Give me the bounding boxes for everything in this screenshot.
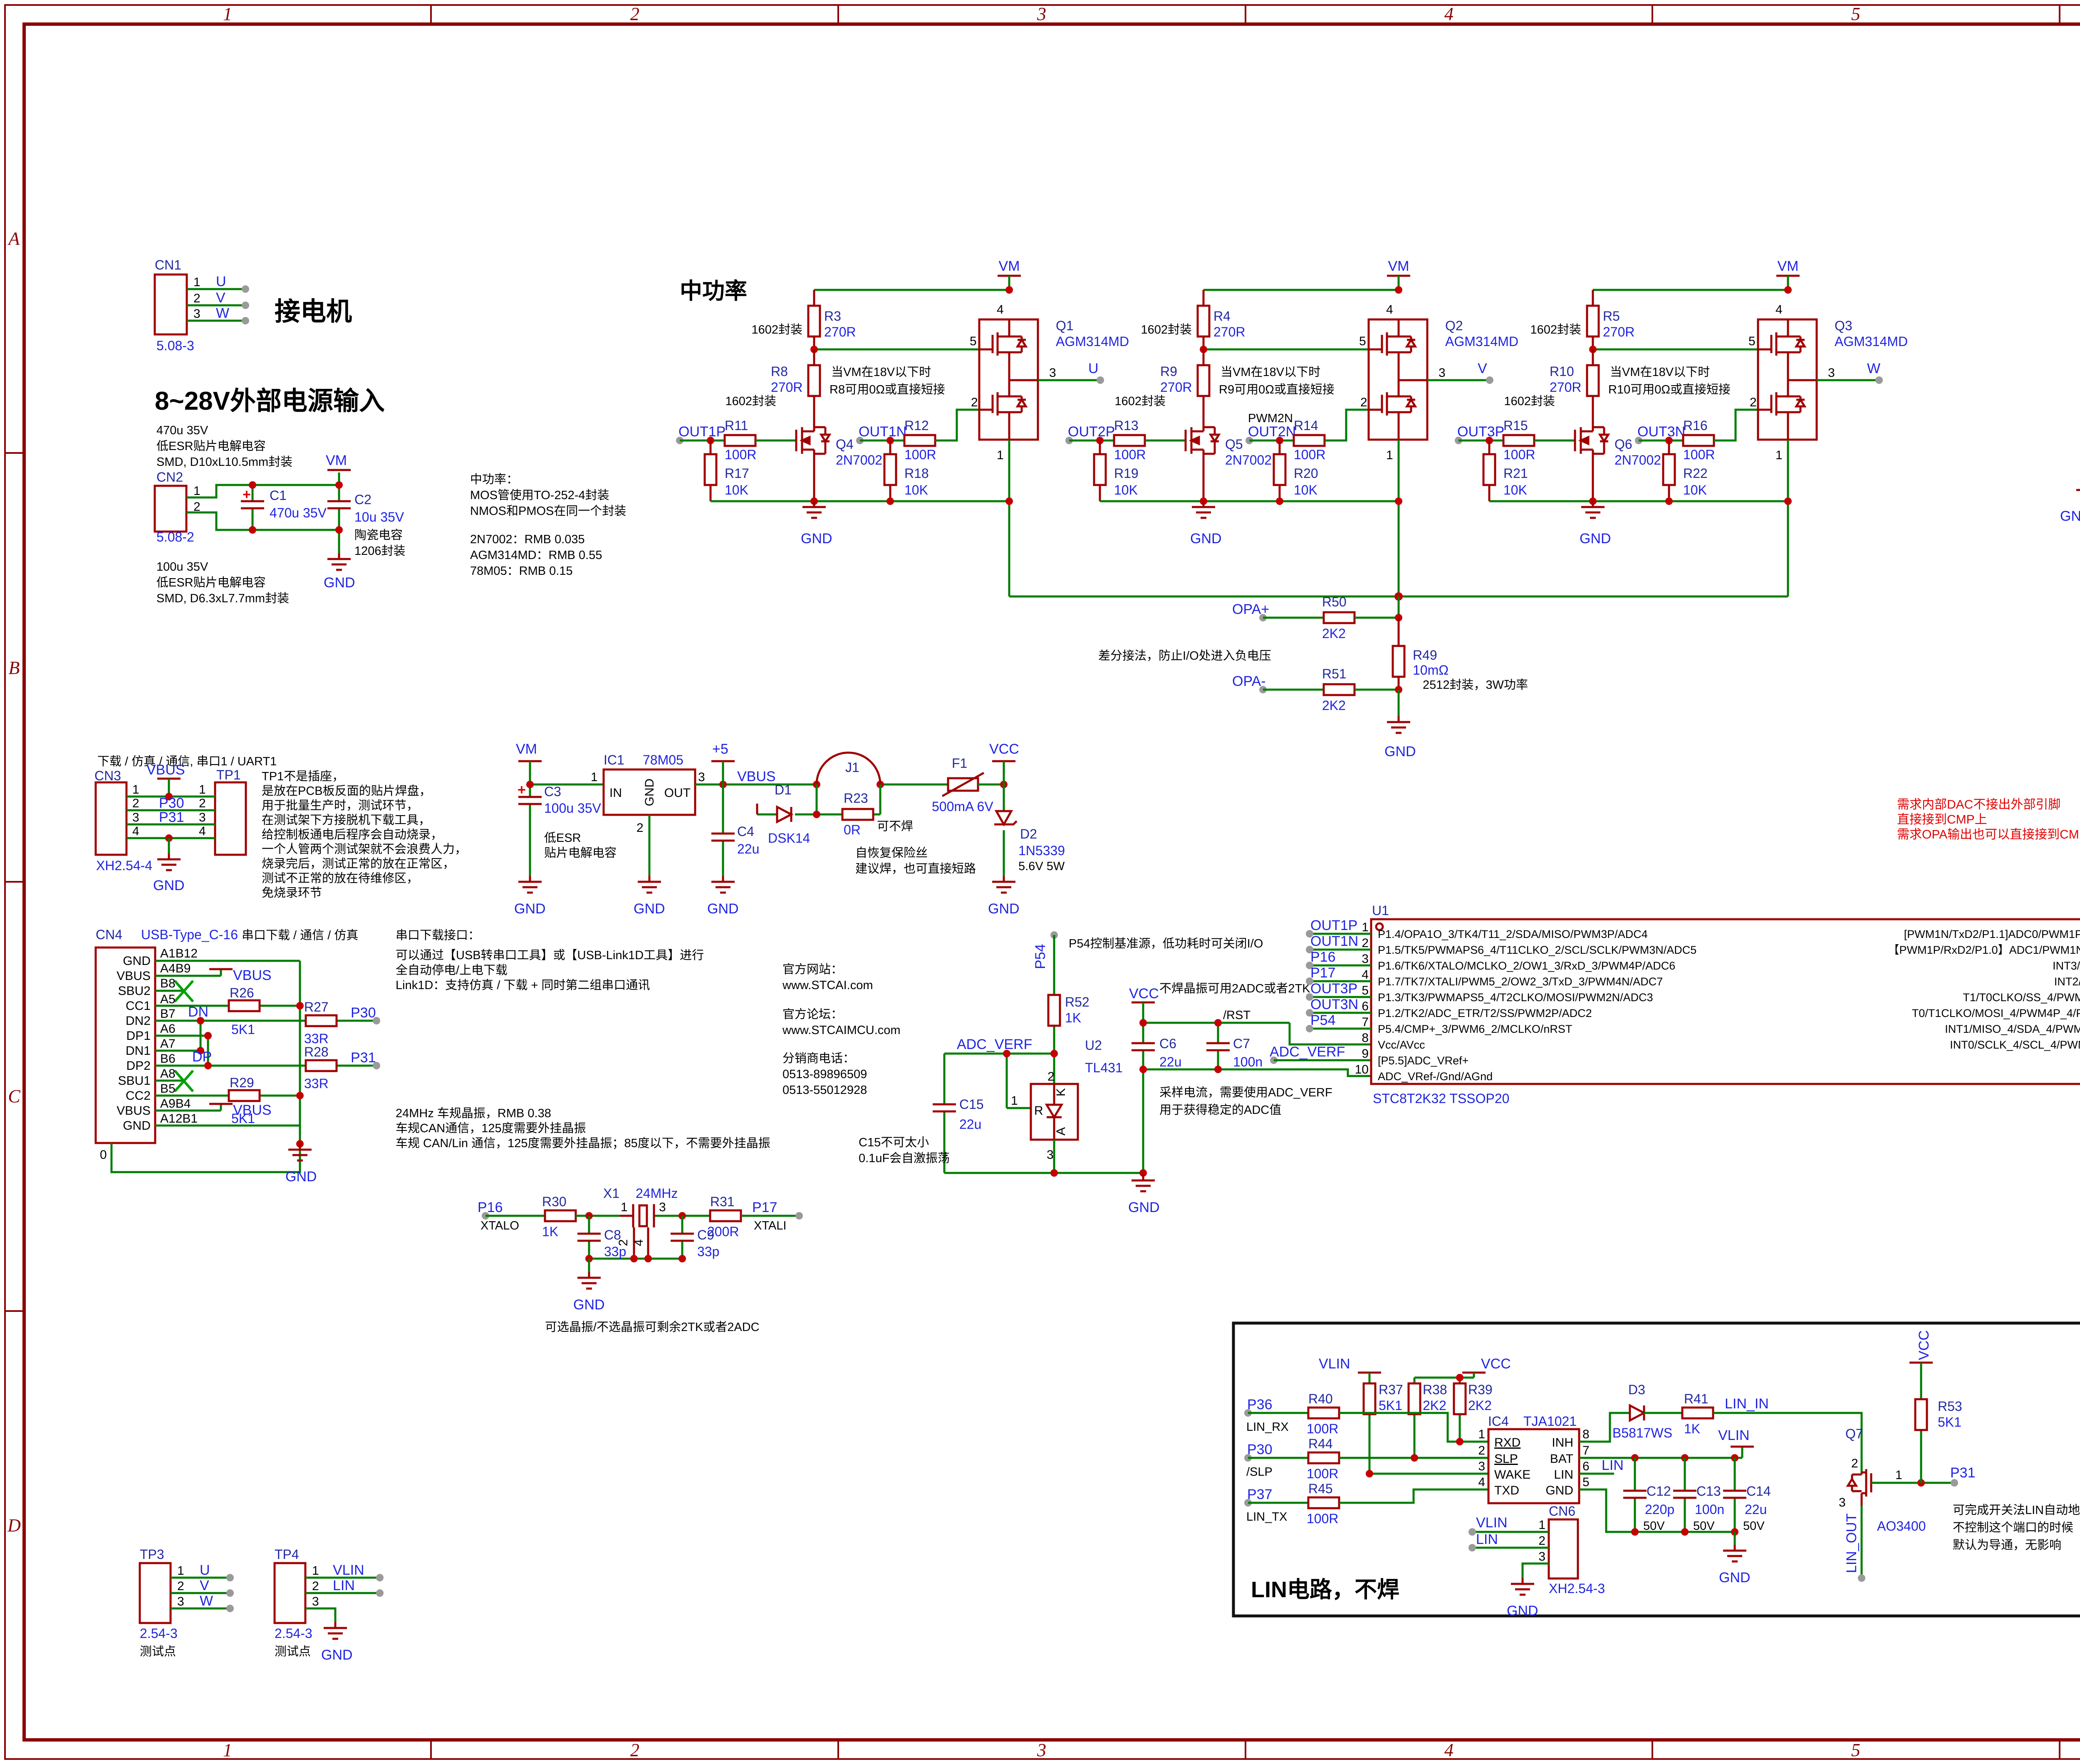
ic4-wake: WAKE <box>1494 1468 1530 1482</box>
usb-shell: 0 <box>100 1148 107 1162</box>
r38-val: 2K2 <box>1423 1398 1446 1413</box>
r49-val: 10mΩ <box>1413 663 1449 678</box>
note: Link1D：支持仿真 / 下载 + 同时第二组串口通讯 <box>396 978 650 992</box>
tp3-ref: TP3 <box>140 1547 164 1562</box>
net-vcc: VCC <box>1481 1356 1511 1372</box>
usb-des: A1B12 <box>160 947 198 960</box>
net: OUT3N <box>1310 997 1358 1012</box>
net-vlin: VLIN <box>1319 1356 1350 1372</box>
note: MOS管使用TO-252-4封装 <box>470 488 609 502</box>
qs-ref: Q5 <box>1225 437 1243 452</box>
x1-ref: X1 <box>603 1186 619 1201</box>
note: 贴片电解电容 <box>544 846 617 860</box>
note: 可完成开关法LIN自动地址识别 <box>1953 1503 2080 1517</box>
qs-ref: Q4 <box>836 437 854 452</box>
rp-ref: R11 <box>725 418 748 433</box>
note: 0.1uF会自激振荡 <box>859 1151 950 1165</box>
c12-volt: 50V <box>1643 1519 1665 1533</box>
rmid-val: 270R <box>1550 380 1582 395</box>
net-p30: P30 <box>351 1005 376 1021</box>
net-lin-out: LIN_OUT <box>1844 1513 1860 1573</box>
q7-pin2: 2 <box>1851 1457 1858 1470</box>
note: 用于获得稳定的ADC值 <box>1159 1103 1281 1117</box>
r45-val: 100R <box>1307 1511 1339 1526</box>
net-adcverf: ADC_VERF <box>957 1037 1032 1052</box>
rn-val: 100R <box>1683 447 1715 462</box>
note: 不焊晶振可用2ADC或者2TK <box>1159 982 1310 995</box>
note: 自恢复保险丝 <box>855 846 928 860</box>
q-val: AGM314MD <box>1445 334 1518 349</box>
r28-val: 33R <box>304 1076 329 1091</box>
r51-ref: R51 <box>1322 666 1347 681</box>
pkg: 1602封装 <box>1114 394 1166 408</box>
net-lin: LIN <box>1476 1531 1498 1547</box>
pin: 3 <box>199 811 206 824</box>
mcu-u1[interactable]: U1 OUT1P OUT1N P16 P17 OUT3P OUT3N P54 1… <box>1306 903 2080 1106</box>
lin-title: LIN电路，不焊 <box>1251 1577 1399 1602</box>
pin: 3 <box>177 1595 184 1608</box>
pin: 5 <box>1362 984 1369 997</box>
note: SMD, D10xL10.5mm封装 <box>156 455 292 469</box>
usb-name: GND <box>123 1119 151 1133</box>
net-vm: VM <box>1778 258 1799 274</box>
d2-ref: D2 <box>1020 826 1037 841</box>
rmid-val: 270R <box>1160 380 1192 395</box>
net-vlin: VLIN <box>1476 1515 1508 1531</box>
tp1-ref: TP1 <box>216 767 241 782</box>
u2-a: A <box>1054 1127 1068 1136</box>
q7-ref: Q7 <box>1845 1426 1863 1441</box>
zone-col: 4 <box>1444 1740 1454 1760</box>
phone: 0513-55012928 <box>782 1084 867 1097</box>
inp-net: OUT1P <box>678 424 726 440</box>
r41-val: 1K <box>1684 1421 1700 1436</box>
qs-val: 2N7002 <box>1225 453 1272 468</box>
net-u: U <box>216 274 226 289</box>
usb-des: B5 <box>160 1082 176 1096</box>
d1-val: DSK14 <box>768 831 810 846</box>
fn: INT0/SCLK_4/SCL_4/PWMETI/PWMETI2/TK14/P3… <box>1950 1039 2080 1051</box>
forum-url: www.STCAIMCU.com <box>782 1024 901 1037</box>
note: 采样电流，需要使用ADC_VERF <box>1159 1086 1332 1099</box>
ic4-ref: IC4 <box>1488 1414 1509 1429</box>
out-net: U <box>1088 361 1099 376</box>
note: 470u 35V <box>156 424 208 437</box>
note: 不控制这个端口的时候 <box>1953 1521 2073 1534</box>
q-val: AGM314MD <box>1056 334 1129 349</box>
net-gnd: GND <box>321 1647 353 1663</box>
lin-circuit[interactable]: LIN电路，不焊 VLIN R37 5K1 VCC R38 2K2 R39 2K… <box>1233 1323 2080 1619</box>
out-net: V <box>1478 361 1487 376</box>
uart-connector[interactable]: 下载 / 仿真 / 通信, 串口1 / UART1 CN3 TP1 1 2 3 … <box>94 755 467 900</box>
u2-val: TL431 <box>1085 1060 1123 1075</box>
c6-ref: C6 <box>1159 1036 1176 1051</box>
cn3-footprint: XH2.54-4 <box>96 858 152 873</box>
fn: ADC_VRef-/Gnd/AGnd <box>1378 1070 1493 1083</box>
current-sense[interactable]: OPA+ R50 2K2 R49 10mΩ OPA- R51 2K2 GND 差… <box>1009 592 1788 760</box>
q-ref: Q2 <box>1445 318 1463 333</box>
net-vm: VM <box>999 258 1020 274</box>
midpower-title: 中功率 <box>680 279 747 304</box>
net-lin-in: LIN_IN <box>1725 1396 1769 1412</box>
usb-des: A8 <box>160 1067 176 1081</box>
pin3: 3 <box>1439 366 1446 380</box>
net-gnd: GND <box>801 531 832 547</box>
rpd-val: 10K <box>1114 482 1138 497</box>
ic1-gnd: GND <box>643 779 656 807</box>
r39-ref: R39 <box>1468 1382 1493 1397</box>
rmid-ref: R9 <box>1160 364 1177 379</box>
phone: 0513-89896509 <box>782 1068 867 1081</box>
usb-name: DP2 <box>126 1059 151 1073</box>
net-gnd: GND <box>1507 1603 1538 1619</box>
pin: 4 <box>1478 1475 1485 1489</box>
cn4-desc: 串口下载 / 通信 / 仿真 <box>242 928 358 942</box>
c14-ref: C14 <box>1746 1484 1771 1499</box>
note: 车规 CAN/Lin 通信，125度需要外挂晶振；85度以下，不需要外挂晶振 <box>396 1136 770 1150</box>
cn6-footprint: XH2.54-3 <box>1549 1581 1605 1596</box>
note: 可不焊 <box>877 819 913 833</box>
pin: 8 <box>1362 1031 1369 1045</box>
r26-val: 5K1 <box>231 1022 255 1037</box>
net-gnd: GND <box>1719 1570 1751 1586</box>
pin: 4 <box>1362 968 1369 982</box>
phase-v[interactable]: VM R4 270R 1602封装 5 R9 270R 1602封装 当VM在1… <box>1065 258 1518 596</box>
j1-ref: J1 <box>845 760 859 775</box>
out-net: W <box>1867 361 1880 376</box>
note: NMOS和PMOS在同一个封装 <box>470 504 626 518</box>
r31-ref: R31 <box>710 1194 735 1209</box>
net-gnd: GND <box>634 901 665 917</box>
net-v: V <box>216 290 225 306</box>
r39-val: 2K2 <box>1468 1398 1492 1413</box>
ic1-out: OUT <box>664 786 691 800</box>
note: TP1不是插座， <box>262 769 344 783</box>
r44-val: 100R <box>1307 1466 1339 1481</box>
note: 差分接法，防止I/O处进入负电压 <box>1098 649 1271 663</box>
pkg: 1602封装 <box>1141 323 1192 336</box>
ic4-slp: SLP <box>1494 1452 1518 1466</box>
q-ref: Q3 <box>1835 318 1852 333</box>
fn: P1.6/TK6/XTALO/MCLKO_2/OW1_3/RxD_3/PWM4P… <box>1378 960 1675 972</box>
cn2-footprint: 5.08-2 <box>156 529 194 544</box>
pin: 4 <box>132 824 139 838</box>
r31-val: 200R <box>707 1224 739 1239</box>
pin2: 2 <box>1750 396 1757 409</box>
r38-ref: R38 <box>1423 1382 1447 1397</box>
c4-val: 22u <box>737 841 759 856</box>
zone-col: 1 <box>223 4 232 24</box>
note-red: 直接接到CMP上 <box>1897 813 1987 826</box>
rn-ref: R14 <box>1294 418 1318 433</box>
net-p30: P30 <box>1247 1442 1273 1457</box>
note: R8可用0Ω或直接短接 <box>830 383 945 396</box>
note: 低ESR贴片电解电容 <box>156 576 266 589</box>
regulator-78m05[interactable]: VM + C3 100u 35V 低ESR 贴片电解电容 GND IC1 78M… <box>514 741 1065 917</box>
rn-ref: R12 <box>904 418 929 433</box>
motor-title: 接电机 <box>275 297 352 326</box>
cn4-val: USB-Type_C-16 <box>141 927 238 942</box>
note: AGM314MD：RMB 0.55 <box>470 549 602 562</box>
note: 测试不正常的放在待维修区， <box>262 871 418 885</box>
net-p17: P17 <box>752 1200 778 1215</box>
rtop-val: 270R <box>824 324 856 339</box>
c15-val: 22u <box>959 1117 981 1132</box>
crystal-circuit[interactable]: P16 XTALO R30 1K X1 24MHz 1 3 2 4 C8 33p… <box>478 1186 803 1334</box>
pkg: 1602封装 <box>751 323 802 336</box>
net-p31: P31 <box>1950 1465 1976 1481</box>
r53-val: 5K1 <box>1938 1415 1961 1430</box>
note: 当VM在18V以下时 <box>1610 365 1710 379</box>
note: 5.6V 5W <box>1018 860 1065 873</box>
net: P17 <box>1310 965 1336 981</box>
motor-connector[interactable]: CN1 1 2 3 U V W 5.08-3 接电机 <box>155 257 352 353</box>
fn: P1.2/TK2/ADC_ETR/T2/SS/PWM2P/ADC2 <box>1378 1007 1592 1019</box>
r26-ref: R26 <box>230 985 254 1000</box>
note: 是放在PCB板反面的贴片焊盘， <box>262 784 431 798</box>
note: 当VM在18V以下时 <box>1221 365 1320 379</box>
rpd-ref: R19 <box>1114 466 1139 481</box>
pin: 4 <box>199 824 206 838</box>
cn2-ref: CN2 <box>156 470 183 485</box>
cn3-ref: CN3 <box>94 768 121 783</box>
note: 陶瓷电容 <box>354 528 403 542</box>
cn1-footprint: 5.08-3 <box>156 338 194 353</box>
r40-ref: R40 <box>1308 1391 1333 1406</box>
rnd-ref: R22 <box>1683 466 1708 481</box>
c13-ref: C13 <box>1696 1484 1721 1499</box>
c14-val: 22u <box>1745 1502 1767 1517</box>
note: 2N7002：RMB 0.035 <box>470 533 585 546</box>
rpd-val: 10K <box>725 482 748 497</box>
net-gnd: GND <box>514 901 546 917</box>
pin: 3 <box>1362 952 1369 966</box>
usb-des: B6 <box>160 1052 176 1066</box>
phase-u[interactable]: VM R3 270R 1602封装 5 R8 270R 1602封装 当VM在1… <box>676 258 1129 596</box>
ic4-gnd: GND <box>1545 1484 1573 1497</box>
r29-ref: R29 <box>230 1075 254 1090</box>
c3-val: 100u 35V <box>544 801 602 816</box>
u1-part: STC8T2K32 TSSOP20 <box>1373 1091 1509 1106</box>
zone-col: 3 <box>1037 4 1046 24</box>
net-vbus: VBUS <box>233 967 272 983</box>
u2-pin1: 1 <box>1011 1094 1018 1108</box>
fn: Vcc/AVcc <box>1378 1039 1425 1051</box>
fn: [P5.5]ADC_VRef+ <box>1378 1054 1468 1067</box>
inn-net: OUT3N <box>1637 424 1685 440</box>
r50-val: 2K2 <box>1322 626 1346 641</box>
pin: 2 <box>199 797 206 810</box>
xtalo-label: XTALO <box>480 1219 519 1232</box>
ic4-lin: LIN <box>1554 1468 1573 1482</box>
note: 低ESR贴片电解电容 <box>156 439 266 453</box>
net-p54: P54 <box>1033 944 1048 970</box>
rtop-ref: R5 <box>1603 309 1620 324</box>
pin: 1 <box>312 1564 319 1578</box>
net-p31: P31 <box>351 1050 376 1066</box>
usb-name: CC1 <box>126 999 151 1013</box>
pin: 2 <box>132 797 139 810</box>
net-vlin: VLIN <box>1718 1428 1750 1443</box>
tp4-ref: TP4 <box>275 1547 299 1562</box>
rst-label: /RST <box>1223 1009 1250 1022</box>
net-vcc: VCC <box>989 741 1019 757</box>
net-gnd: GND <box>1580 531 1611 547</box>
c7-ref: C7 <box>1233 1036 1250 1051</box>
tp3-footprint: 2.54-3 <box>140 1626 178 1641</box>
schematic-canvas: 1 2 3 4 5 6 1 2 3 4 5 6 A B C D A B C D … <box>0 0 2080 1764</box>
zone-col: 2 <box>630 4 639 24</box>
pin: 3 <box>132 811 139 824</box>
usb-des: A9B4 <box>160 1097 191 1111</box>
x1-val: 24MHz <box>636 1186 678 1201</box>
zone-col: 1 <box>223 1740 232 1760</box>
testpoints[interactable]: TP3 1 2 3 U V W 2.54-3 测试点 TP4 1 2 3 VLI… <box>140 1547 384 1663</box>
r23-ref: R23 <box>844 791 868 806</box>
net-gnd: GND <box>988 901 1020 917</box>
note: 全自动停电/上电下载 <box>396 963 508 977</box>
rn-val: 100R <box>904 447 936 462</box>
note: 官方网站： <box>782 962 843 976</box>
r52-val: 1K <box>1065 1010 1081 1025</box>
qs-ref: Q6 <box>1614 437 1632 452</box>
f1-ref: F1 <box>952 756 967 771</box>
q-ref: Q1 <box>1056 318 1074 333</box>
pin: 10 <box>1355 1063 1369 1076</box>
usb-des: A6 <box>160 1022 176 1036</box>
pin: 6 <box>1582 1460 1590 1473</box>
zone-row: D <box>7 1515 21 1536</box>
note: 当VM在18V以下时 <box>831 365 931 379</box>
r29-val: 5K1 <box>231 1111 255 1126</box>
c9-val: 33p <box>697 1244 719 1259</box>
r44-ref: R44 <box>1308 1436 1333 1451</box>
fn: P5.4/CMP+_3/PWM6_2/MCLKO/nRST <box>1378 1023 1572 1035</box>
u2-pin2: 2 <box>1047 1070 1055 1084</box>
net-gnd: GND <box>153 878 185 893</box>
zone-col: 5 <box>1851 1740 1860 1760</box>
ic4-rxd: RXD <box>1494 1436 1520 1450</box>
net-plus5: +5 <box>712 741 728 757</box>
r37-ref: R37 <box>1379 1382 1403 1397</box>
fn: T1/T0CLKO/SS_4/PWMFLT/PWMFLT2/TK13/P3.5 <box>1963 991 2080 1004</box>
zone-col: 5 <box>1851 4 1860 24</box>
q7-pin3: 3 <box>1839 1496 1846 1509</box>
c8-val: 33p <box>604 1244 626 1259</box>
q7-val: AO3400 <box>1877 1519 1926 1534</box>
download-notes: 可以通过【USB转串口工具】或【USB-Link1D工具】进行 全自动停电/上电… <box>396 948 901 1150</box>
pin: 8 <box>1582 1428 1590 1441</box>
d2-val: 1N5339 <box>1018 843 1065 858</box>
phase-w[interactable]: VM R5 270R 1602封装 5 R10 270R 1602封装 当VM在… <box>1455 258 1908 596</box>
note: 给控制板通电后程序会自动烧录， <box>262 828 443 841</box>
usb-des: A4B9 <box>160 962 191 975</box>
rpd-ref: R17 <box>725 466 749 481</box>
note: 用于批量生产时，测试环节， <box>262 799 418 812</box>
ic1-in: IN <box>609 786 622 800</box>
c2-ref: C2 <box>354 492 371 507</box>
net: W <box>200 1593 213 1609</box>
pin: 2 <box>177 1579 184 1593</box>
note: C15不可太小 <box>859 1136 929 1149</box>
ic1-pin2: 2 <box>636 821 644 835</box>
x1-pin1: 1 <box>621 1200 628 1214</box>
note: R10可用0Ω或直接短接 <box>1608 383 1731 396</box>
pin: 5 <box>1582 1475 1590 1489</box>
net-vbus: VBUS <box>146 762 185 778</box>
pin: 7 <box>1362 1015 1369 1029</box>
note: 低ESR <box>544 831 581 845</box>
ic4-inh: INH <box>1552 1436 1573 1450</box>
r28-ref: R28 <box>304 1044 329 1059</box>
rmid-ref: R10 <box>1550 364 1574 379</box>
r41-ref: R41 <box>1684 1391 1709 1406</box>
fn: P1.4/OPA1O_3/TK4/T11_2/SDA/MISO/PWM3P/AD… <box>1378 928 1648 940</box>
inp-net: OUT2P <box>1068 424 1115 440</box>
net: P54 <box>1310 1012 1336 1028</box>
cn4-ref: CN4 <box>96 927 122 942</box>
r49-ref: R49 <box>1413 648 1437 663</box>
cn1-pin3: 3 <box>193 307 201 321</box>
vref-circuit[interactable]: P54 P54控制基准源，低功耗时可关闭I/O R52 1K 不焊晶振可用2AD… <box>859 931 1371 1215</box>
usb-des: A7 <box>160 1037 176 1051</box>
qs-val: 2N7002 <box>836 453 882 468</box>
net-vbus: VBUS <box>737 769 776 784</box>
pin3: 3 <box>1049 366 1056 380</box>
r50-ref: R50 <box>1322 594 1347 609</box>
usb-header: 串口下载接口： <box>396 928 480 942</box>
rpd-ref: R21 <box>1503 466 1528 481</box>
fn: P1.5/TK5/PWMAPS6_4/T11CLKO_2/SCL/SCLK/PW… <box>1378 944 1696 956</box>
usb-name: CC2 <box>126 1089 151 1103</box>
rtop-val: 270R <box>1213 324 1246 339</box>
mounting-screws[interactable]: Screws1 M3 Screws2 M3 Screws3 M3 Screws4… <box>2060 261 2080 524</box>
note: 可以通过【USB转串口工具】或【USB-Link1D工具】进行 <box>396 948 704 962</box>
c1-val: 470u 35V <box>270 505 327 520</box>
rn-ref: R16 <box>1683 418 1708 433</box>
rpd-val: 10K <box>1503 482 1527 497</box>
net-p16: P16 <box>478 1200 503 1215</box>
inn-net: OUT1N <box>859 424 906 440</box>
bom-notes: 中功率： MOS管使用TO-252-4封装 NMOS和PMOS在同一个封装 2N… <box>470 473 626 578</box>
net-lin: LIN <box>1602 1457 1624 1473</box>
rtop-ref: R3 <box>824 309 841 324</box>
c13-val: 100n <box>1695 1502 1724 1517</box>
rnd-ref: R18 <box>904 466 929 481</box>
tp4-label: 测试点 <box>275 1645 311 1658</box>
net-w: W <box>216 305 229 321</box>
ic1-ref: IC1 <box>604 752 624 767</box>
pkg: 1602封装 <box>1530 323 1581 336</box>
pin4: 4 <box>1386 303 1393 317</box>
power-input[interactable]: 8~28V外部电源输入 470u 35V 低ESR贴片电解电容 SMD, D10… <box>155 387 406 605</box>
qs-val: 2N7002 <box>1614 453 1661 468</box>
rnd-val: 10K <box>1683 482 1707 497</box>
net: LIN <box>333 1578 355 1593</box>
x1-pin3: 3 <box>659 1200 666 1214</box>
r37-val: 5K1 <box>1379 1398 1402 1413</box>
x1-pin4: 4 <box>632 1239 646 1246</box>
net-vm: VM <box>1388 258 1409 274</box>
cn1-pin1: 1 <box>193 275 201 289</box>
cn1-pin2: 2 <box>193 292 201 305</box>
pin1: 1 <box>1775 448 1783 462</box>
net: OUT1N <box>1310 933 1358 949</box>
zone-row: C <box>8 1086 20 1106</box>
pkg: 1602封装 <box>725 394 776 408</box>
net-vcc: VCC <box>1916 1330 1932 1360</box>
rnd-val: 10K <box>1294 482 1317 497</box>
